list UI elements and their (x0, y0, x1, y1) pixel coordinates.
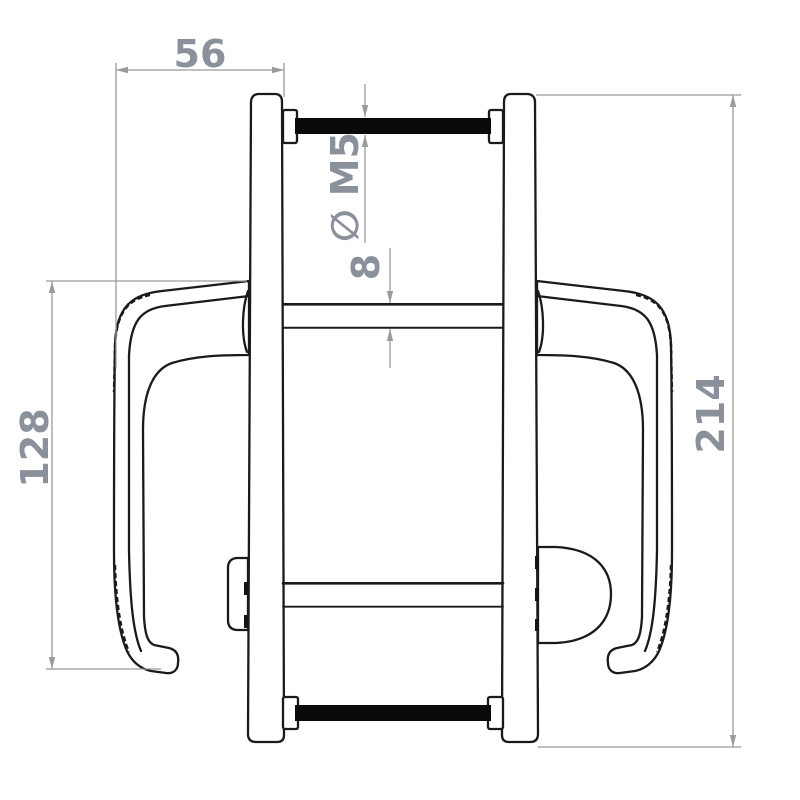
bottom-connecting-screw (295, 705, 491, 721)
dim-label-m5: ∅ M5 (323, 132, 367, 242)
arrow-right-icon (272, 67, 284, 73)
dim-label-128: 128 (13, 408, 57, 487)
arrow-down-icon (730, 735, 736, 747)
dimension-m5: ∅ M5 (323, 84, 368, 243)
top-connecting-screw (295, 118, 491, 134)
technical-drawing: 56 ∅ M5 8 128 214 (0, 0, 800, 800)
dim-label-56: 56 (174, 32, 227, 76)
arrow-down-icon (387, 291, 393, 303)
dim-label-8: 8 (344, 254, 388, 280)
right-assembly (488, 94, 672, 742)
arrow-down-icon (49, 657, 55, 669)
lock-bar (283, 583, 503, 606)
left-assembly (114, 94, 298, 742)
dim-label-214: 214 (689, 374, 733, 453)
arrow-up-icon (730, 95, 736, 107)
thumbturn-cap (538, 547, 611, 643)
arrow-down-icon (362, 105, 368, 117)
arrow-left-icon (116, 67, 128, 73)
arrow-up-icon (387, 329, 393, 341)
dimension-8: 8 (344, 248, 393, 368)
spindle-bar (283, 304, 503, 327)
backplate (248, 94, 284, 742)
arrow-up-icon (49, 281, 55, 293)
top-screw-boss (283, 110, 297, 143)
